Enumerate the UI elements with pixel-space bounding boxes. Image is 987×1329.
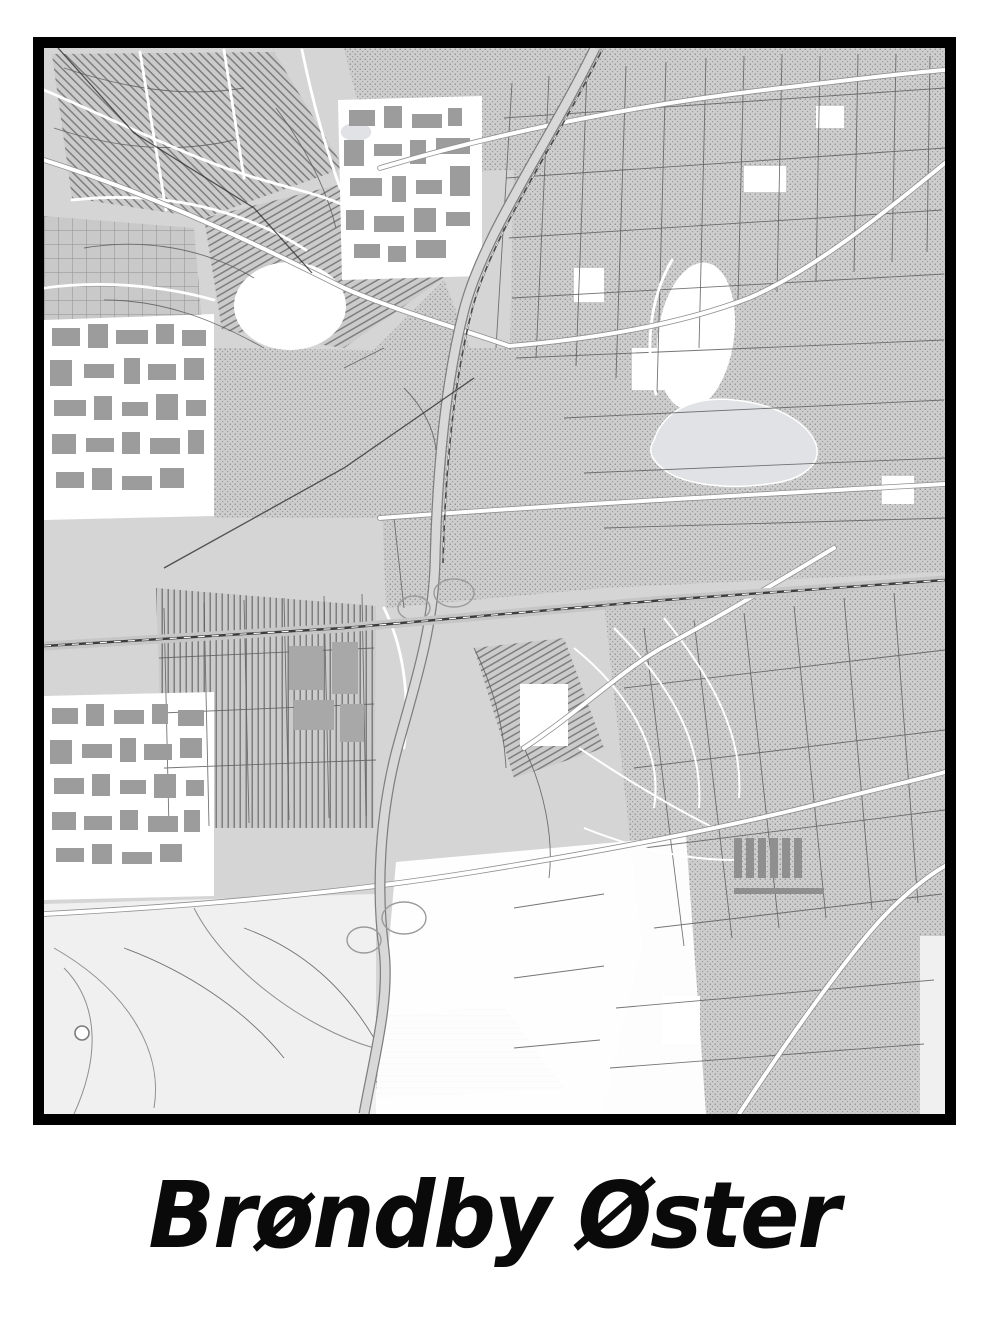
- poster-title: Brøndby Øster: [25, 1163, 963, 1269]
- map-frame: [33, 37, 956, 1125]
- city-map: [44, 48, 945, 1114]
- roundabout: [75, 1026, 89, 1040]
- map-poster: Brøndby Øster: [0, 0, 987, 1329]
